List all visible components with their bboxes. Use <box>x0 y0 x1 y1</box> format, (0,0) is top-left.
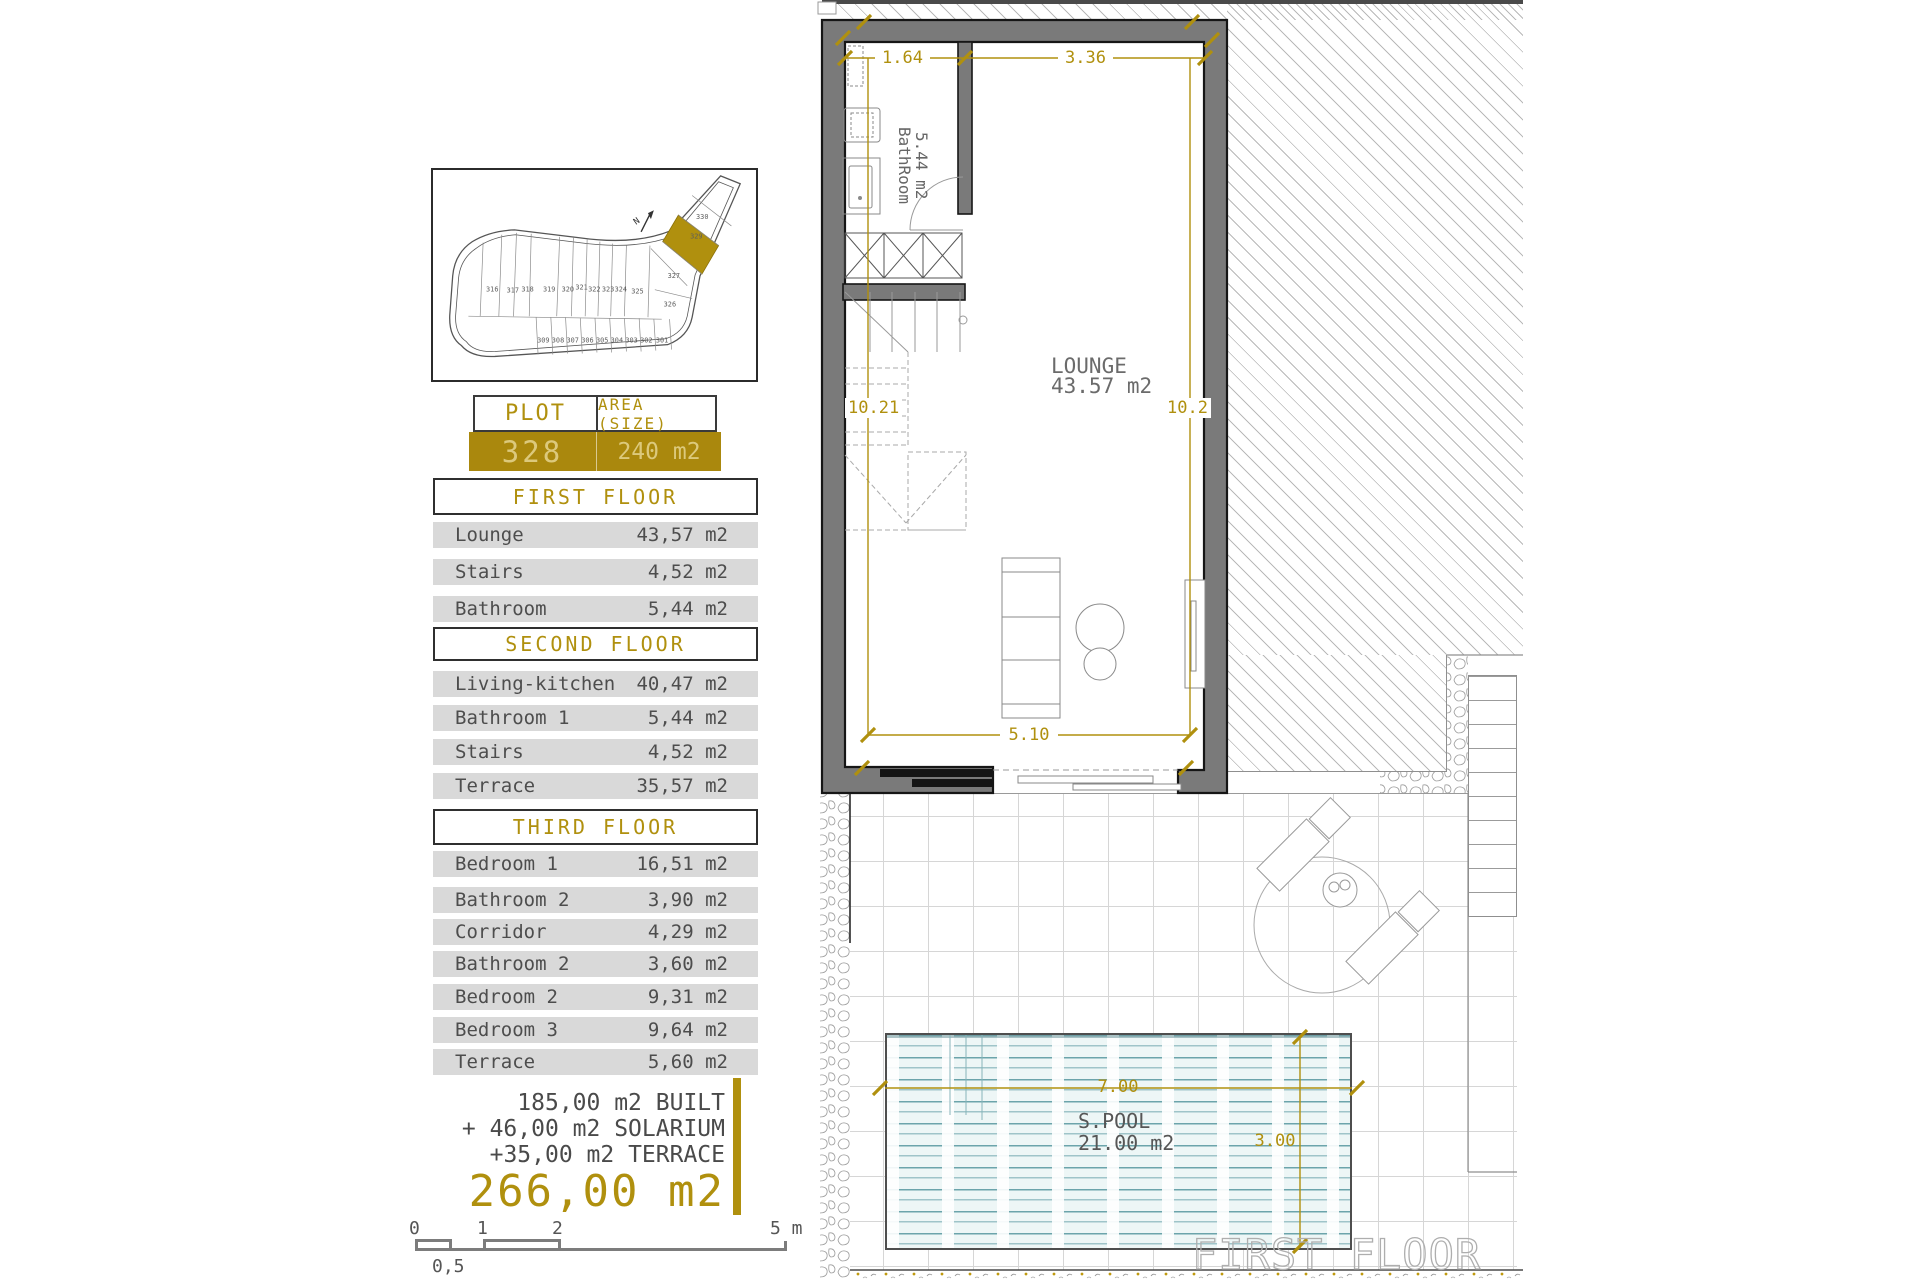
staircase-lower-dashed <box>845 352 966 530</box>
plot-boundary-line <box>822 0 1523 4</box>
sliding-door <box>880 769 1181 790</box>
dimension-label: 3.36 <box>1058 48 1113 68</box>
room-name: BathRoom <box>896 100 913 232</box>
tv-unit <box>1185 580 1205 688</box>
bathroom-wall <box>958 42 972 214</box>
pool-steps <box>950 1035 982 1120</box>
pool-label: S.POOL 21.00 m2 <box>1078 1110 1174 1154</box>
stair-storage <box>845 233 962 278</box>
dimension-label: 3.00 <box>1252 1131 1298 1151</box>
bathroom-label: BathRoom 5.44 m2 <box>896 100 930 232</box>
stair-wall <box>843 284 965 300</box>
room-name: LOUNGE <box>1051 356 1152 376</box>
sofa <box>1002 558 1060 718</box>
dimension-label: 10.21 <box>845 398 902 418</box>
floor-plan-sheet: N 316 317 318 319 320 321 322 323 324 32… <box>0 0 1920 1280</box>
dimension-label: 7.00 <box>1092 1077 1144 1097</box>
dimension-label: 5.10 <box>1000 725 1058 745</box>
room-area: 21.00 m2 <box>1078 1132 1174 1154</box>
coffee-table <box>1076 604 1124 680</box>
floor-plan-drawing <box>0 0 1920 1280</box>
lounge-label: LOUNGE 43.57 m2 <box>1051 356 1152 396</box>
room-name: S.POOL <box>1078 1110 1174 1132</box>
plan-title: FIRST FLOOR <box>1192 1230 1481 1279</box>
patio-table <box>1323 873 1357 907</box>
bathroom-fixtures <box>843 46 880 214</box>
boundary-marker <box>818 2 836 14</box>
room-area: 43.57 m2 <box>1051 376 1152 396</box>
dimension-label: 1.64 <box>875 48 930 68</box>
dimension-label: 10.2 <box>1164 398 1211 418</box>
staircase <box>845 292 967 352</box>
sun-lounger <box>1346 889 1441 984</box>
room-area: 5.44 m2 <box>913 100 930 232</box>
